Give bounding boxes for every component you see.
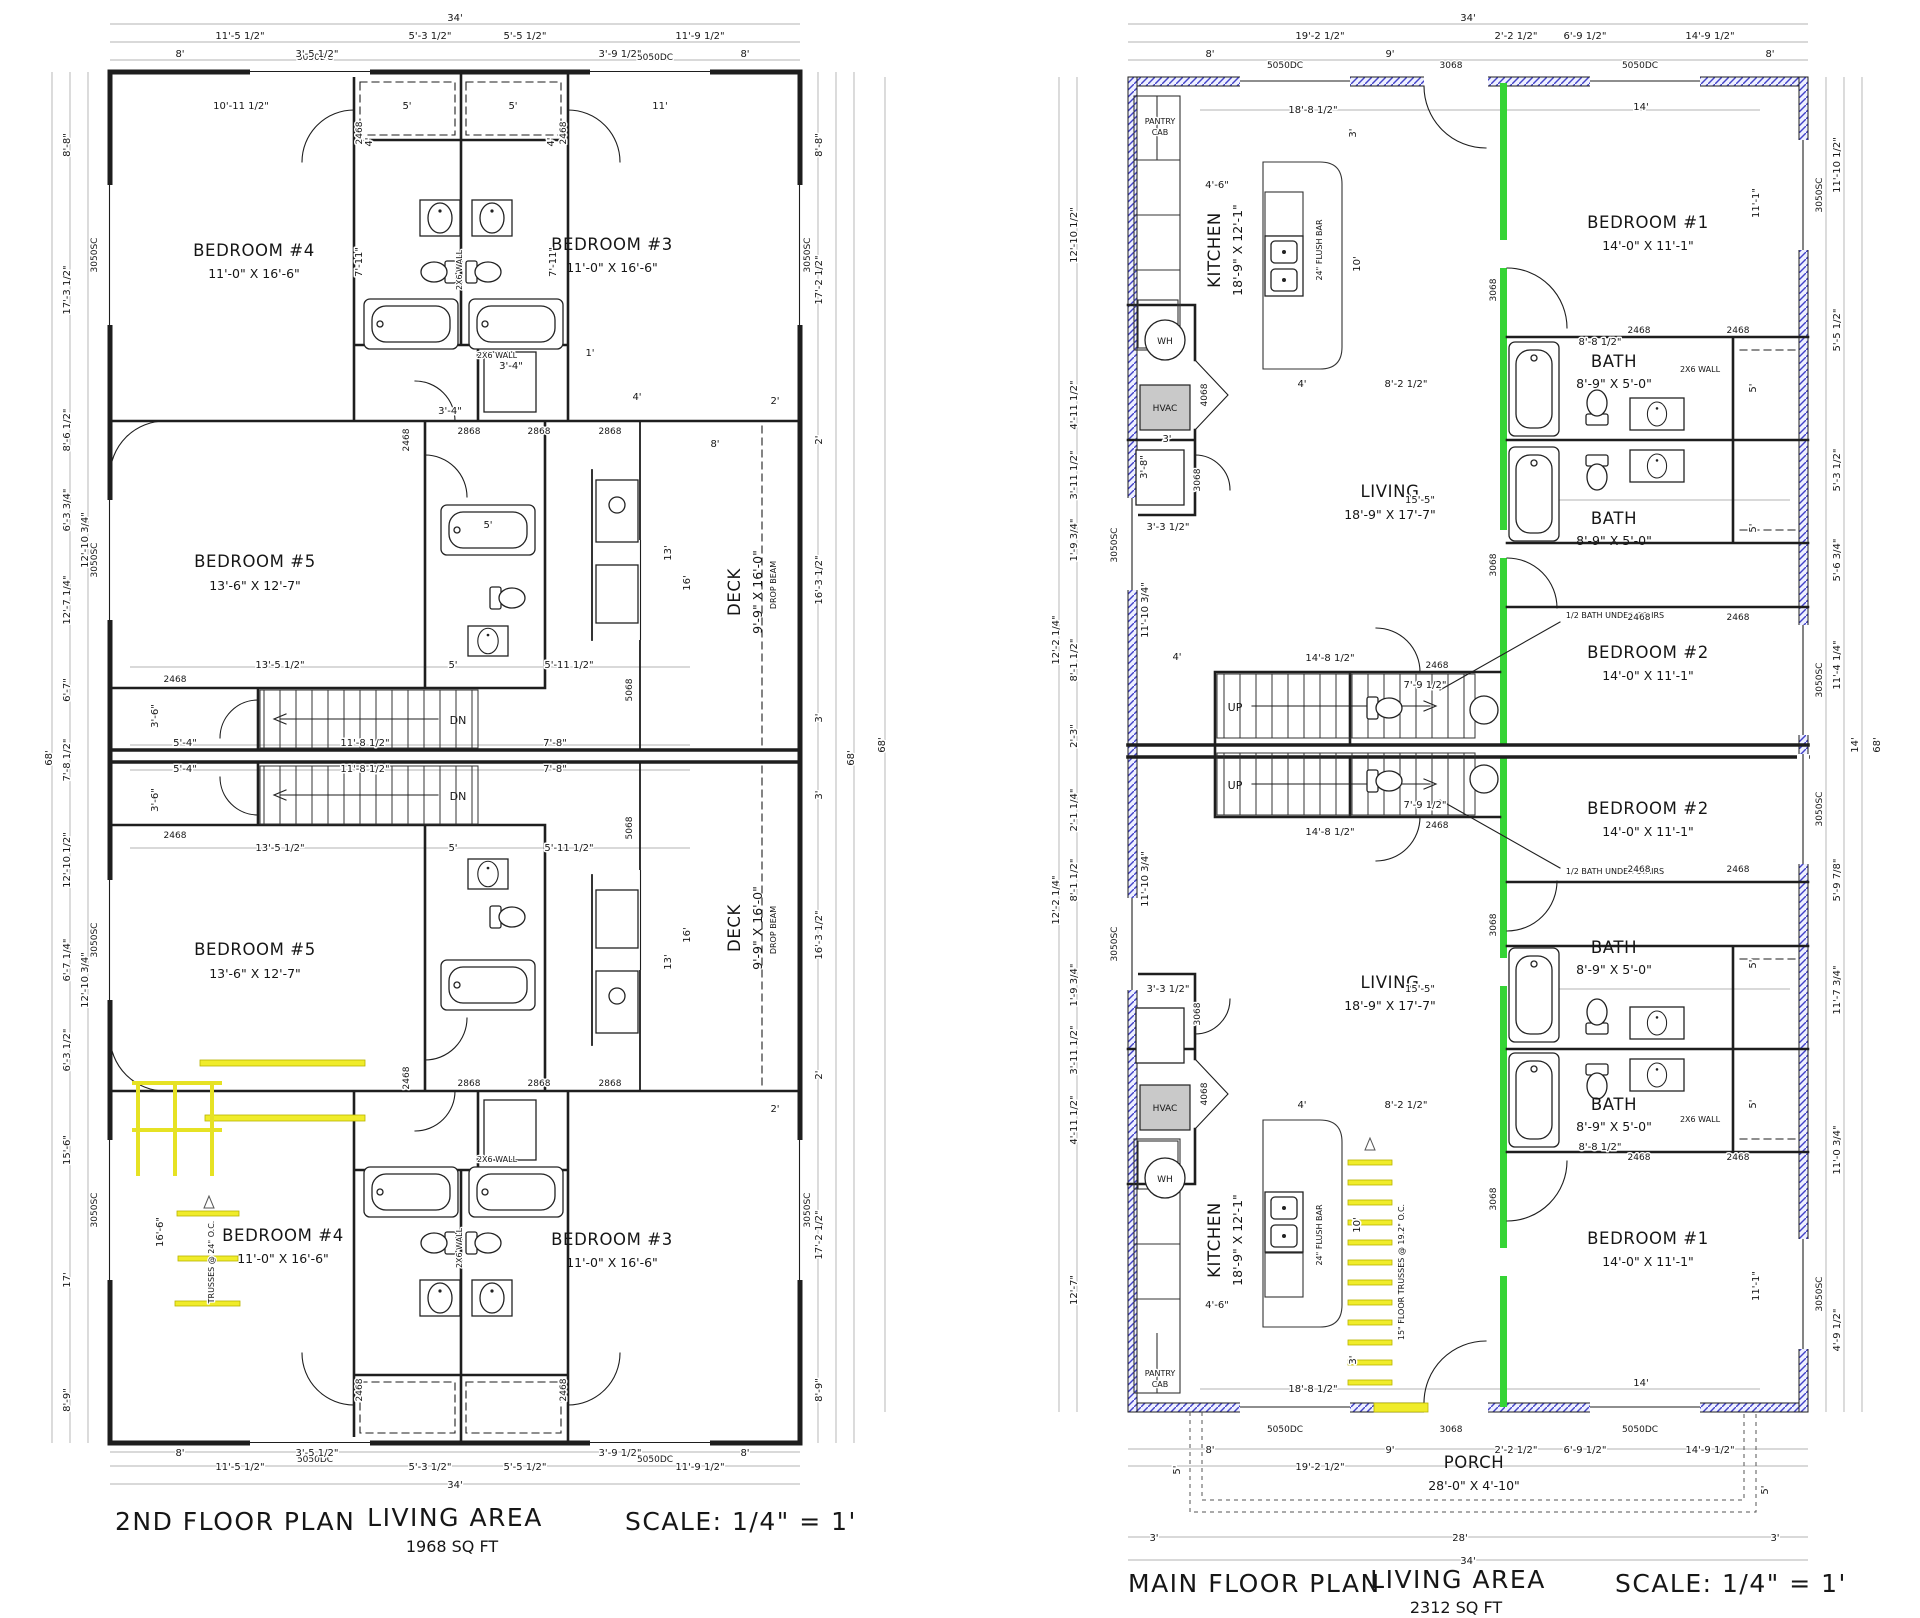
dim-label: 5'-4" <box>173 738 197 749</box>
dim-label: 5'-3 1/2" <box>409 1462 452 1473</box>
dim-label: 3'-6" <box>150 704 161 728</box>
dim-label: 7'-8" <box>543 764 567 775</box>
dim-label: 2' <box>770 396 779 407</box>
flush-bar-note-top: 24" FLUSH BAR <box>1315 219 1324 281</box>
room-size-bedroom5-top: 13'-6" X 12'-7" <box>209 578 301 593</box>
dim-label: 17' <box>62 1272 73 1287</box>
dim-label: 5' <box>1172 1465 1183 1474</box>
door-code: 2868 <box>458 1079 481 1089</box>
dim-label: 10' <box>1352 256 1363 271</box>
wall-note: 2X6 WALL <box>455 249 464 290</box>
wall-note: 2X6 WALL <box>1680 1115 1721 1124</box>
left-scale-label: SCALE: 1/4" = 1' <box>625 1507 857 1536</box>
room-size-bedroom2-top: 14'-0" X 11'-1" <box>1602 668 1694 683</box>
door-code: 2468 <box>559 121 569 144</box>
main-floor-plan: KITCHEN 18'-9" X 12'-1" LIVING 18'-9" X … <box>877 13 1883 1567</box>
dim-label: 11'-0 3/4" <box>1832 1125 1843 1174</box>
door-code: 3068 <box>1193 1002 1203 1025</box>
dim-label: 16' <box>682 927 693 942</box>
dim-label: 11'-4 1/4" <box>1832 640 1843 689</box>
door-code: 4068 <box>1200 383 1210 406</box>
door-code: 2468 <box>1727 613 1750 623</box>
dim-label: 11'-8 1/2" <box>340 738 389 749</box>
dim-label: 5' <box>508 101 517 112</box>
dim-label: 3'-3 1/2" <box>1147 522 1190 533</box>
door-code: 3068 <box>1489 278 1499 301</box>
dim-label: 3'-3 1/2" <box>1147 984 1190 995</box>
dim-label: 12'-2 1/4" <box>1051 615 1062 664</box>
dim-label: 68' <box>1872 737 1883 752</box>
dim-label: 6'-3 1/2" <box>62 1029 73 1072</box>
dim-label: 11'-7 3/4" <box>1832 965 1843 1014</box>
dim-label: 12'-7 1/4" <box>62 575 73 624</box>
dim-label: 12'-10 1/2" <box>62 832 73 888</box>
dim-label: 8'-9" <box>62 1388 73 1412</box>
room-label-bedroom5-bottom: BEDROOM #5 <box>194 940 316 959</box>
dim-label: 2' <box>770 1104 779 1115</box>
dim-label: 5'-3 1/2" <box>409 31 452 42</box>
door-code: 2468 <box>1628 865 1651 875</box>
dim-label: 8'-8" <box>62 133 73 157</box>
dim-label: 8' <box>175 1448 184 1459</box>
room-size-bedroom1-top: 14'-0" X 11'-1" <box>1602 238 1694 253</box>
dim-label: 8' <box>1205 1445 1214 1456</box>
dim-label: 8' <box>710 439 719 450</box>
dim-label: 34' <box>447 13 462 24</box>
room-size-kitchen-top: 18'-9" X 12'-1" <box>1230 204 1245 296</box>
door-code: 2468 <box>1628 326 1651 336</box>
door-code: 5068 <box>625 816 635 839</box>
floor-plan-sheet: BEDROOM #4 11'-0" X 16'-6" BEDROOM #3 11… <box>0 0 1920 1618</box>
dim-label: 3'-5 1/2" <box>296 49 339 60</box>
stairs <box>260 690 478 824</box>
door-code: 3068 <box>1193 468 1203 491</box>
room-label-bath-a-top: BATH <box>1591 352 1637 371</box>
door-code: 3068 <box>1489 1187 1499 1210</box>
water-heater-label-bottom: WH <box>1157 1175 1173 1185</box>
dim-label: 12'-2 1/4" <box>1051 875 1062 924</box>
dim-label: 11'-10 3/4" <box>1140 851 1151 907</box>
dim-label: 6'-3 3/4" <box>62 489 73 532</box>
room-label-bedroom1-bottom: BEDROOM #1 <box>1587 1229 1709 1248</box>
wall-note: 2X6 WALL <box>455 1227 464 1268</box>
dim-label: 8' <box>740 49 749 60</box>
dim-label: 8'-1 1/2" <box>1069 639 1080 682</box>
dim-label: 11'-5 1/2" <box>215 1462 264 1473</box>
dim-label: 5'-5 1/2" <box>504 31 547 42</box>
door-code: 2468 <box>1727 1153 1750 1163</box>
dim-label: 7'-8" <box>543 738 567 749</box>
dim-label: 8'-6 1/2" <box>62 409 73 452</box>
door-code: 2468 <box>1628 1153 1651 1163</box>
door-code: 3068 <box>1489 553 1499 576</box>
window-code: 3050SC <box>90 1193 100 1228</box>
room-size-living-bottom: 18'-9" X 17'-7" <box>1344 998 1436 1013</box>
dim-label: 3'-4" <box>438 406 462 417</box>
dim-label: 28' <box>1452 1533 1467 1544</box>
pantry-label-top2: CAB <box>1152 128 1169 137</box>
room-label-bedroom2-top: BEDROOM #2 <box>1587 643 1709 662</box>
right-title-block: MAIN FLOOR PLAN LIVING AREA 2312 SQ FT S… <box>1128 1565 1847 1617</box>
dim-label: 3' <box>1162 434 1171 445</box>
room-label-bedroom3-bottom: BEDROOM #3 <box>551 1230 673 1249</box>
door-code: 3068 <box>1440 1425 1463 1435</box>
dim-label: 11'-10 1/2" <box>1832 137 1843 193</box>
dim-label: 11'-9 1/2" <box>675 1462 724 1473</box>
dim-label: 2'-2 1/2" <box>1495 31 1538 42</box>
dim-label: 4' <box>1297 1100 1306 1111</box>
dim-label: 7'-9 1/2" <box>1404 680 1447 691</box>
dim-label: 5' <box>402 101 411 112</box>
room-label-bedroom5-top: BEDROOM #5 <box>194 552 316 571</box>
dim-label: 8' <box>740 1448 749 1459</box>
room-label-bedroom3-top: BEDROOM #3 <box>551 235 673 254</box>
second-floor-plan: BEDROOM #4 11'-0" X 16'-6" BEDROOM #3 11… <box>44 13 857 1491</box>
dim-label: 2' <box>814 1070 825 1079</box>
left-plan-title: 2ND FLOOR PLAN <box>115 1507 355 1536</box>
dim-label: 1'-9 3/4" <box>1069 964 1080 1007</box>
dim-label: 3'-8" <box>1139 455 1150 479</box>
dim-label: 5'-9 7/8" <box>1832 859 1843 902</box>
dim-label: 16'-6" <box>155 1217 166 1247</box>
dim-label: 8'-9" <box>814 1378 825 1402</box>
dim-label: 5' <box>1748 959 1759 968</box>
room-size-bath-b-top: 8'-9" X 5'-0" <box>1576 533 1652 548</box>
dim-label: 5'-6 3/4" <box>1832 539 1843 582</box>
room-label-kitchen-bottom: KITCHEN <box>1205 1202 1224 1278</box>
left-area-label: LIVING AREA <box>367 1503 543 1532</box>
drop-beam-note-top: DROP BEAM <box>769 561 778 609</box>
dim-label: 15'-5" <box>1405 495 1435 506</box>
dim-label: 1' <box>585 348 594 359</box>
dim-label: 5'-5 1/2" <box>504 1462 547 1473</box>
room-size-kitchen-bottom: 18'-9" X 12'-1" <box>1230 1194 1245 1286</box>
dimension-lines <box>52 24 854 1484</box>
dim-label: 8' <box>1205 49 1214 60</box>
dim-label: 11' <box>652 101 667 112</box>
room-label-bedroom4-top: BEDROOM #4 <box>193 241 315 260</box>
left-area-value: 1968 SQ FT <box>406 1537 499 1556</box>
dim-label: 13'-5 1/2" <box>255 660 304 671</box>
dim-label: 12'-7" <box>1069 1275 1080 1305</box>
dim-label: 8'-8" <box>814 133 825 157</box>
door-code: 2468 <box>402 1066 412 1089</box>
door-code: 2468 <box>1426 661 1449 671</box>
door-code: 4068 <box>1200 1082 1210 1105</box>
dim-label: 6'-9 1/2" <box>1564 1445 1607 1456</box>
dim-label: 3'-5 1/2" <box>296 1448 339 1459</box>
dim-label: 11'-5 1/2" <box>215 31 264 42</box>
room-size-bedroom1-bottom: 14'-0" X 11'-1" <box>1602 1254 1694 1269</box>
dim-label: 19'-2 1/2" <box>1295 31 1344 42</box>
dim-label: 68' <box>44 750 55 765</box>
room-size-bedroom3-top: 11'-0" X 16'-6" <box>566 260 658 275</box>
wall-note: 2X6 WALL <box>477 1155 518 1164</box>
dim-label: 34' <box>447 1480 462 1491</box>
dim-label: 14'-9 1/2" <box>1685 31 1734 42</box>
dim-label: 2' <box>814 435 825 444</box>
dim-label: 6'-7" <box>62 678 73 702</box>
window-code: 3050SC <box>803 1193 813 1228</box>
right-scale-label: SCALE: 1/4" = 1' <box>1615 1569 1847 1598</box>
wall-note: 2X6 WALL <box>477 351 518 360</box>
dim-label: 68' <box>846 750 857 765</box>
dim-label: 16'-3 1/2" <box>814 555 825 604</box>
dim-label: 11'-1" <box>1751 1271 1762 1301</box>
window-code: 3050SC <box>1815 178 1825 213</box>
room-label-bath-b-top: BATH <box>1591 509 1637 528</box>
water-heater-label-top: WH <box>1157 337 1173 347</box>
dim-label: 8' <box>1765 49 1774 60</box>
door-code: 2468 <box>1628 613 1651 623</box>
walls <box>1128 305 1808 1184</box>
room-label-bedroom2-bottom: BEDROOM #2 <box>1587 799 1709 818</box>
dim-label: 4' <box>1172 652 1181 663</box>
door-code: 2868 <box>528 427 551 437</box>
dim-label: 3'-6" <box>150 788 161 812</box>
window-code: 5050DC <box>1622 1425 1658 1435</box>
dim-label: 5' <box>483 520 492 531</box>
room-size-deck-top: 9'-9" X 16'-0" <box>750 550 765 634</box>
dim-label: 16' <box>682 575 693 590</box>
room-label-deck-top: DECK <box>725 567 744 615</box>
room-size-bedroom3-bottom: 11'-0" X 16'-6" <box>566 1255 658 1270</box>
window-code: 5050DC <box>637 1455 673 1465</box>
dim-label: 3' <box>1770 1533 1779 1544</box>
hvac-label-top: HVAC <box>1153 404 1178 414</box>
dim-label: 7'-8 1/2" <box>62 739 73 782</box>
window-code: 3050SC <box>1815 663 1825 698</box>
dim-label: 14' <box>1850 737 1861 752</box>
dim-label: 68' <box>877 737 888 752</box>
dim-label: 5' <box>448 843 457 854</box>
dim-label: 8'-8 1/2" <box>1579 337 1622 348</box>
window-code: 3050SC <box>90 543 100 578</box>
dim-label: 11'-1" <box>1751 188 1762 218</box>
dim-label: 3'-9 1/2" <box>599 1448 642 1459</box>
window-code: 3050SC <box>1815 792 1825 827</box>
dim-label: 4'-9 1/2" <box>1832 1309 1843 1352</box>
door-code: 2868 <box>599 427 622 437</box>
dim-label: 7'-9 1/2" <box>1404 800 1447 811</box>
room-size-bedroom4-bottom: 11'-0" X 16'-6" <box>237 1251 329 1266</box>
wall-note: 2X6 WALL <box>1680 365 1721 374</box>
dim-label: 16'-3 1/2" <box>814 910 825 959</box>
dim-label: 14' <box>1633 102 1648 113</box>
door-code: 2868 <box>599 1079 622 1089</box>
door-code: 2868 <box>458 427 481 437</box>
dim-label: 5'-5 1/2" <box>1832 309 1843 352</box>
dim-label: 5' <box>448 660 457 671</box>
dim-label: 4' <box>1297 379 1306 390</box>
dim-label: 5' <box>1748 1099 1759 1108</box>
dim-label: 19'-2 1/2" <box>1295 1462 1344 1473</box>
pantry-label-top: PANTRY <box>1145 117 1176 126</box>
door-code: 2468 <box>402 428 412 451</box>
dim-label: 8'-2 1/2" <box>1385 1100 1428 1111</box>
stairs-up-label-top: UP <box>1228 701 1243 714</box>
window-code: 3050SC <box>90 238 100 273</box>
door-code: 2468 <box>559 1378 569 1401</box>
dim-label: 6'-7 1/4" <box>62 939 73 982</box>
dim-label: 10'-11 1/2" <box>213 101 269 112</box>
dim-label: 3'-9 1/2" <box>599 49 642 60</box>
left-title-block: 2ND FLOOR PLAN LIVING AREA 1968 SQ FT SC… <box>115 1503 857 1556</box>
dim-label: 18'-8 1/2" <box>1288 105 1337 116</box>
room-label-kitchen-top: KITCHEN <box>1205 212 1224 288</box>
dim-label: 10' <box>1352 1217 1363 1232</box>
dim-label: 17'-3 1/2" <box>62 265 73 314</box>
drop-beam-note-bottom: DROP BEAM <box>769 906 778 954</box>
room-size-living-top: 18'-9" X 17'-7" <box>1344 507 1436 522</box>
dim-label: 3'-4" <box>499 361 523 372</box>
door-code: 2468 <box>164 675 187 685</box>
dim-label: 12'-10 1/2" <box>1069 207 1080 263</box>
window-code: 5050DC <box>1622 61 1658 71</box>
stairs-down-label-top: DN <box>450 714 467 727</box>
dim-label: 13' <box>663 545 674 560</box>
window-code: 5050DC <box>1267 1425 1303 1435</box>
room-size-bath-b-bottom: 8'-9" X 5'-0" <box>1576 962 1652 977</box>
door-code: 2468 <box>1727 865 1750 875</box>
dim-label: 18'-8 1/2" <box>1288 1384 1337 1395</box>
door-code: 3068 <box>1440 61 1463 71</box>
dim-label: 4'-11 1/2" <box>1069 1095 1080 1144</box>
door-code: 2868 <box>528 1079 551 1089</box>
dim-label: 6'-9 1/2" <box>1564 31 1607 42</box>
dim-label: 4' <box>364 137 375 146</box>
window-code: 3050SC <box>1815 1277 1825 1312</box>
pantry-label-bottom2: CAB <box>1152 1380 1169 1389</box>
dim-label: 11'-9 1/2" <box>675 31 724 42</box>
dim-label: 13'-5 1/2" <box>255 843 304 854</box>
room-size-bedroom4-top: 11'-0" X 16'-6" <box>208 266 300 281</box>
dim-label: 3'-11 1/2" <box>1069 1025 1080 1074</box>
dim-label: 7'-11" <box>548 247 559 277</box>
door-code: 5068 <box>625 678 635 701</box>
dim-label: 4' <box>546 137 557 146</box>
truss-highlights <box>132 1060 365 1306</box>
room-label-bath-b-bottom: BATH <box>1591 938 1637 957</box>
door-code: 2468 <box>355 1378 365 1401</box>
dim-label: 5'-11 1/2" <box>544 843 593 854</box>
window-code: 3050SC <box>90 923 100 958</box>
room-label-bath-a-bottom: BATH <box>1591 1095 1637 1114</box>
dim-label: 14'-8 1/2" <box>1305 653 1354 664</box>
dim-label: 2'-1 1/4" <box>1069 789 1080 832</box>
pantry-label-bottom: PANTRY <box>1145 1369 1176 1378</box>
room-label-bedroom1-top: BEDROOM #1 <box>1587 213 1709 232</box>
dim-label: 15'-6" <box>62 1135 73 1165</box>
dim-label: 8'-1 1/2" <box>1069 859 1080 902</box>
right-area-value: 2312 SQ FT <box>1410 1598 1503 1617</box>
dim-label: 14' <box>1633 1378 1648 1389</box>
dim-label: 3' <box>814 790 825 799</box>
door-code: 2468 <box>1426 821 1449 831</box>
door-code: 2468 <box>164 831 187 841</box>
dim-label: 11'-8 1/2" <box>340 764 389 775</box>
room-label-bedroom4-bottom: BEDROOM #4 <box>222 1226 344 1245</box>
room-size-bath-a-bottom: 8'-9" X 5'-0" <box>1576 1119 1652 1134</box>
dim-label: 4'-6" <box>1205 180 1229 191</box>
dim-label: 17'-2 1/2" <box>814 255 825 304</box>
window-code: 3050SC <box>1110 927 1120 962</box>
truss-highlights <box>1348 1138 1392 1385</box>
dim-label: 11'-10 3/4" <box>1140 582 1151 638</box>
dim-label: 5'-4" <box>173 764 197 775</box>
dim-label: 4'-6" <box>1205 1300 1229 1311</box>
dim-label: 8'-2 1/2" <box>1385 379 1428 390</box>
dim-label: 1'-9 3/4" <box>1069 519 1080 562</box>
dim-label: 2'-2 1/2" <box>1495 1445 1538 1456</box>
dim-label: 14'-8 1/2" <box>1305 827 1354 838</box>
room-size-bath-a-top: 8'-9" X 5'-0" <box>1576 376 1652 391</box>
dim-label: 34' <box>1460 13 1475 24</box>
door-code: 3068 <box>1489 913 1499 936</box>
floor-truss-note: 15" FLOOR TRUSSES @ 19.2" O.C. <box>1397 1204 1406 1340</box>
room-size-deck-bottom: 9'-9" X 16'-0" <box>750 886 765 970</box>
right-area-label: LIVING AREA <box>1370 1565 1546 1594</box>
dim-label: 5' <box>1748 383 1759 392</box>
dim-label: 12'-10 3/4" <box>80 512 91 568</box>
dim-label: 17'-2 1/2" <box>814 1210 825 1259</box>
dim-label: 4' <box>632 392 641 403</box>
hvac-label-bottom: HVAC <box>1153 1104 1178 1114</box>
window-code: 5050DC <box>1267 61 1303 71</box>
door-code: 2468 <box>1727 326 1750 336</box>
window-code: 3050SC <box>803 238 813 273</box>
dim-label: 12'-10 3/4" <box>80 952 91 1008</box>
dim-label: 5'-3 1/2" <box>1832 449 1843 492</box>
dim-label: 9' <box>1385 1445 1394 1456</box>
truss-note: TRUSSES @ 24" O.C. <box>207 1221 216 1305</box>
dim-label: 8'-8 1/2" <box>1579 1142 1622 1153</box>
dim-label: 8' <box>175 49 184 60</box>
dim-label: 13' <box>663 954 674 969</box>
dim-label: 3'-11 1/2" <box>1069 450 1080 499</box>
stairs-up-label-bottom: UP <box>1228 779 1243 792</box>
flush-bar-note-bottom: 24" FLUSH BAR <box>1315 1204 1324 1266</box>
dim-label: 9' <box>1385 49 1394 60</box>
right-plan-title: MAIN FLOOR PLAN <box>1128 1569 1381 1598</box>
dim-label: 3' <box>1348 1355 1359 1364</box>
room-size-bedroom2-bottom: 14'-0" X 11'-1" <box>1602 824 1694 839</box>
dim-label: 15'-5" <box>1405 984 1435 995</box>
room-size-bedroom5-bottom: 13'-6" X 12'-7" <box>209 966 301 981</box>
dim-label: 2'-3" <box>1069 724 1080 748</box>
dim-label: 5' <box>1760 1485 1771 1494</box>
dim-label: 5' <box>1748 523 1759 532</box>
room-size-porch: 28'-0" X 4'-10" <box>1428 1478 1520 1493</box>
room-label-deck-bottom: DECK <box>725 903 744 951</box>
dim-label: 7'-11" <box>354 247 365 277</box>
dim-label: 4'-11 1/2" <box>1069 380 1080 429</box>
dim-label: 3' <box>1149 1533 1158 1544</box>
dim-label: 5'-11 1/2" <box>544 660 593 671</box>
dim-label: 3' <box>1348 128 1359 137</box>
stairs-down-label-bottom: DN <box>450 790 467 803</box>
window-code: 5050DC <box>637 53 673 63</box>
window-code: 3050SC <box>1110 528 1120 563</box>
dim-label: 3' <box>814 713 825 722</box>
dim-label: 14'-9 1/2" <box>1685 1445 1734 1456</box>
